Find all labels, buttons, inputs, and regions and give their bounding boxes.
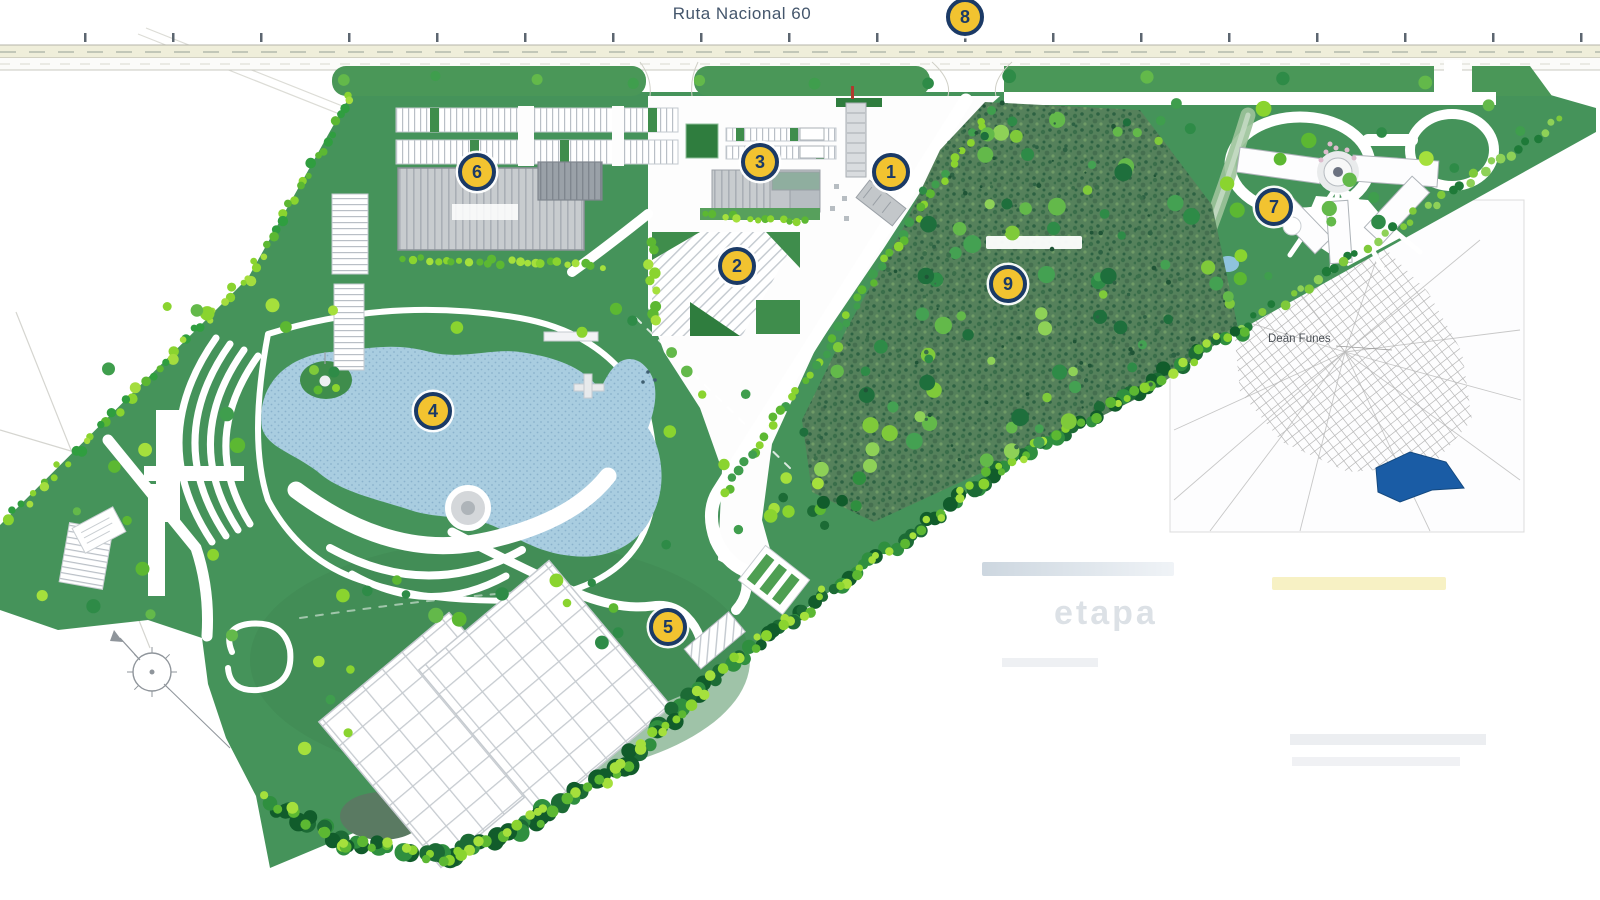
map-marker-5: 5	[649, 608, 687, 646]
pier	[544, 332, 598, 341]
site-plan-drawing	[0, 0, 1600, 900]
inset-city-label: Deán Funes	[1268, 333, 1331, 345]
legend-phase-label: etapa	[1054, 594, 1158, 633]
map-marker-4: 4	[414, 392, 452, 430]
forest-label-bar	[986, 236, 1082, 249]
map-marker-9: 9	[989, 265, 1027, 303]
map-marker-2: 2	[718, 247, 756, 285]
map-marker-6: 6	[458, 153, 496, 191]
site-plan-canvas: Ruta Nacional 60 Deán Funes etapa 1 2 3 …	[0, 0, 1600, 900]
road-name-label: Ruta Nacional 60	[597, 4, 887, 24]
highway-ruta-60	[0, 33, 1600, 70]
map-marker-3: 3	[741, 143, 779, 181]
map-marker-7: 7	[1255, 188, 1293, 226]
building-label-bar	[452, 204, 518, 220]
map-marker-1: 1	[872, 153, 910, 191]
legend-bars	[982, 562, 1486, 766]
flag-mark	[851, 86, 854, 99]
